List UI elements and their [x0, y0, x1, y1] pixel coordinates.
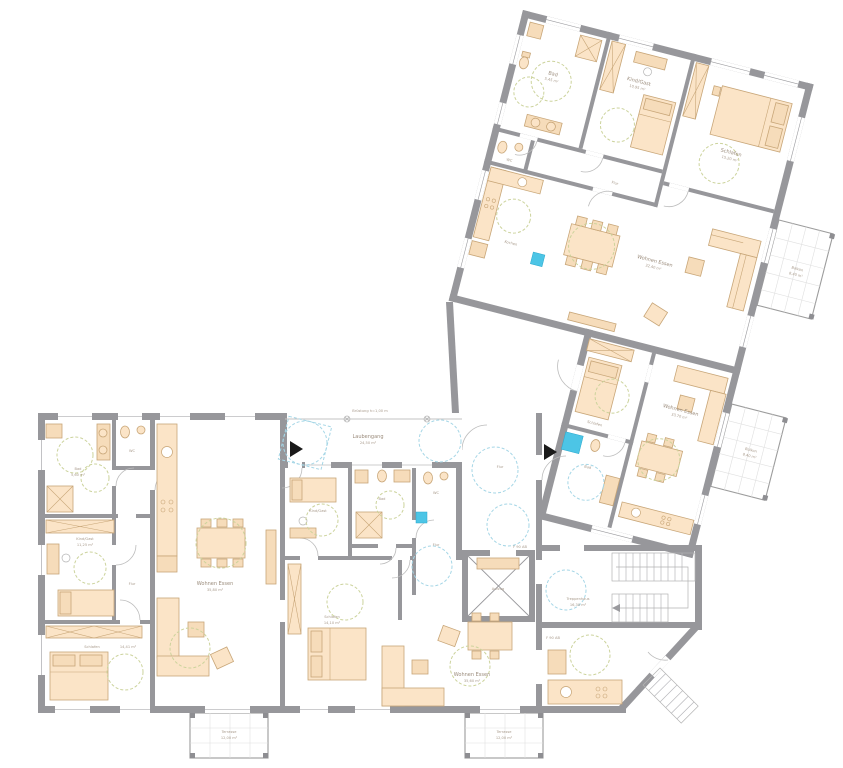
walkway-note: Brüstung h=1,00 m	[352, 409, 388, 413]
floor-plan-svg: Balkon 8,40 m² Balkon 8,40 m²	[0, 0, 843, 768]
bed-icon	[58, 590, 114, 616]
child-room-a-area: 11,25 m²	[77, 543, 94, 547]
elevator-car-icon	[477, 558, 519, 569]
wc-c-label: WC	[433, 491, 440, 495]
fire-rating-label: F 90 AB	[513, 545, 527, 549]
stairwell-label: Treppenhaus	[566, 597, 590, 601]
sink-icon	[162, 447, 173, 458]
shower-icon	[356, 512, 382, 538]
child-room-c-label: Kind/Gast	[309, 509, 327, 513]
hall-c-label: Flur	[433, 543, 440, 547]
terrace-2: Terrasse 12,00 m²	[465, 713, 543, 758]
sideboard-icon	[266, 530, 276, 584]
living-b-area: 35,80 m²	[207, 588, 224, 592]
coffee-table-icon	[412, 660, 428, 674]
shower-icon	[575, 35, 602, 62]
washer-icon	[527, 22, 544, 39]
fridge-icon	[548, 650, 566, 674]
kitchen-b	[157, 424, 177, 572]
desk-icon	[47, 544, 59, 574]
bedroom-a-label: Schlafen	[84, 645, 100, 649]
kitchen-counter-icon	[157, 424, 177, 556]
vanity-icon	[394, 470, 410, 482]
shower-tile-icon	[416, 512, 427, 523]
wc-icon	[424, 472, 433, 484]
terrace-2-label: Terrasse	[496, 730, 513, 734]
floor-plan-sheet: Balkon 8,40 m² Balkon 8,40 m²	[0, 0, 843, 768]
kitchen-counter-icon	[548, 680, 622, 704]
child-room-a-label: Kind/Gast	[76, 537, 94, 541]
living-b-label: Wohnen Essen	[197, 581, 234, 587]
terrace-2-area: 12,00 m²	[496, 736, 513, 740]
wardrobe-icon	[288, 564, 301, 634]
shower-icon	[47, 486, 73, 512]
basin-icon	[440, 472, 448, 480]
wc-icon	[378, 470, 387, 482]
bedroom-c-label: Schlafen	[324, 615, 340, 619]
fire-rating-label: F 90 AB	[546, 636, 560, 640]
fridge-icon	[157, 556, 177, 572]
terrace-1: Terrasse 12,00 m²	[190, 713, 268, 758]
walkway-label: Laubengang	[352, 434, 383, 440]
elevator-label: Aufzug	[492, 587, 504, 591]
bedroom-c-area: 14,10 m²	[324, 621, 341, 625]
living-c-label: Wohnen Essen	[454, 672, 491, 678]
coffee-table-icon	[685, 257, 704, 276]
washer-icon	[355, 470, 368, 483]
bedroom-a-area: 14,41 m²	[120, 645, 137, 649]
bed-icon	[290, 478, 336, 502]
core-hall-label: Flur	[497, 465, 504, 469]
wc-a-label: WC	[129, 449, 136, 453]
lobby-east-wall	[536, 413, 542, 628]
walkway-area: 24,50 m²	[360, 441, 377, 445]
wc-icon	[121, 426, 130, 438]
basin-icon	[137, 426, 145, 434]
stairwell-area: 16,30 m²	[570, 603, 587, 607]
wardrobe-icon	[46, 520, 114, 533]
dining-table-icon	[197, 519, 245, 567]
terrace-1-label: Terrasse	[221, 730, 238, 734]
hall-a-label: Flur	[129, 582, 136, 586]
double-bed-icon	[308, 628, 366, 680]
wardrobe-icon	[46, 626, 142, 638]
terrace-1-area: 12,00 m²	[221, 736, 238, 740]
double-bed-icon	[50, 652, 108, 700]
bathroom-a-label: Bad	[75, 467, 82, 471]
living-c-area: 35,60 m²	[464, 679, 481, 683]
bathroom-a-area: 5,60 m²	[71, 473, 86, 477]
washer-icon	[46, 424, 62, 438]
coffee-table-icon	[188, 622, 204, 637]
vanity-icon	[97, 424, 110, 460]
bathroom-c-label: Bad	[379, 497, 386, 501]
shaft-tile-icon	[530, 252, 545, 267]
